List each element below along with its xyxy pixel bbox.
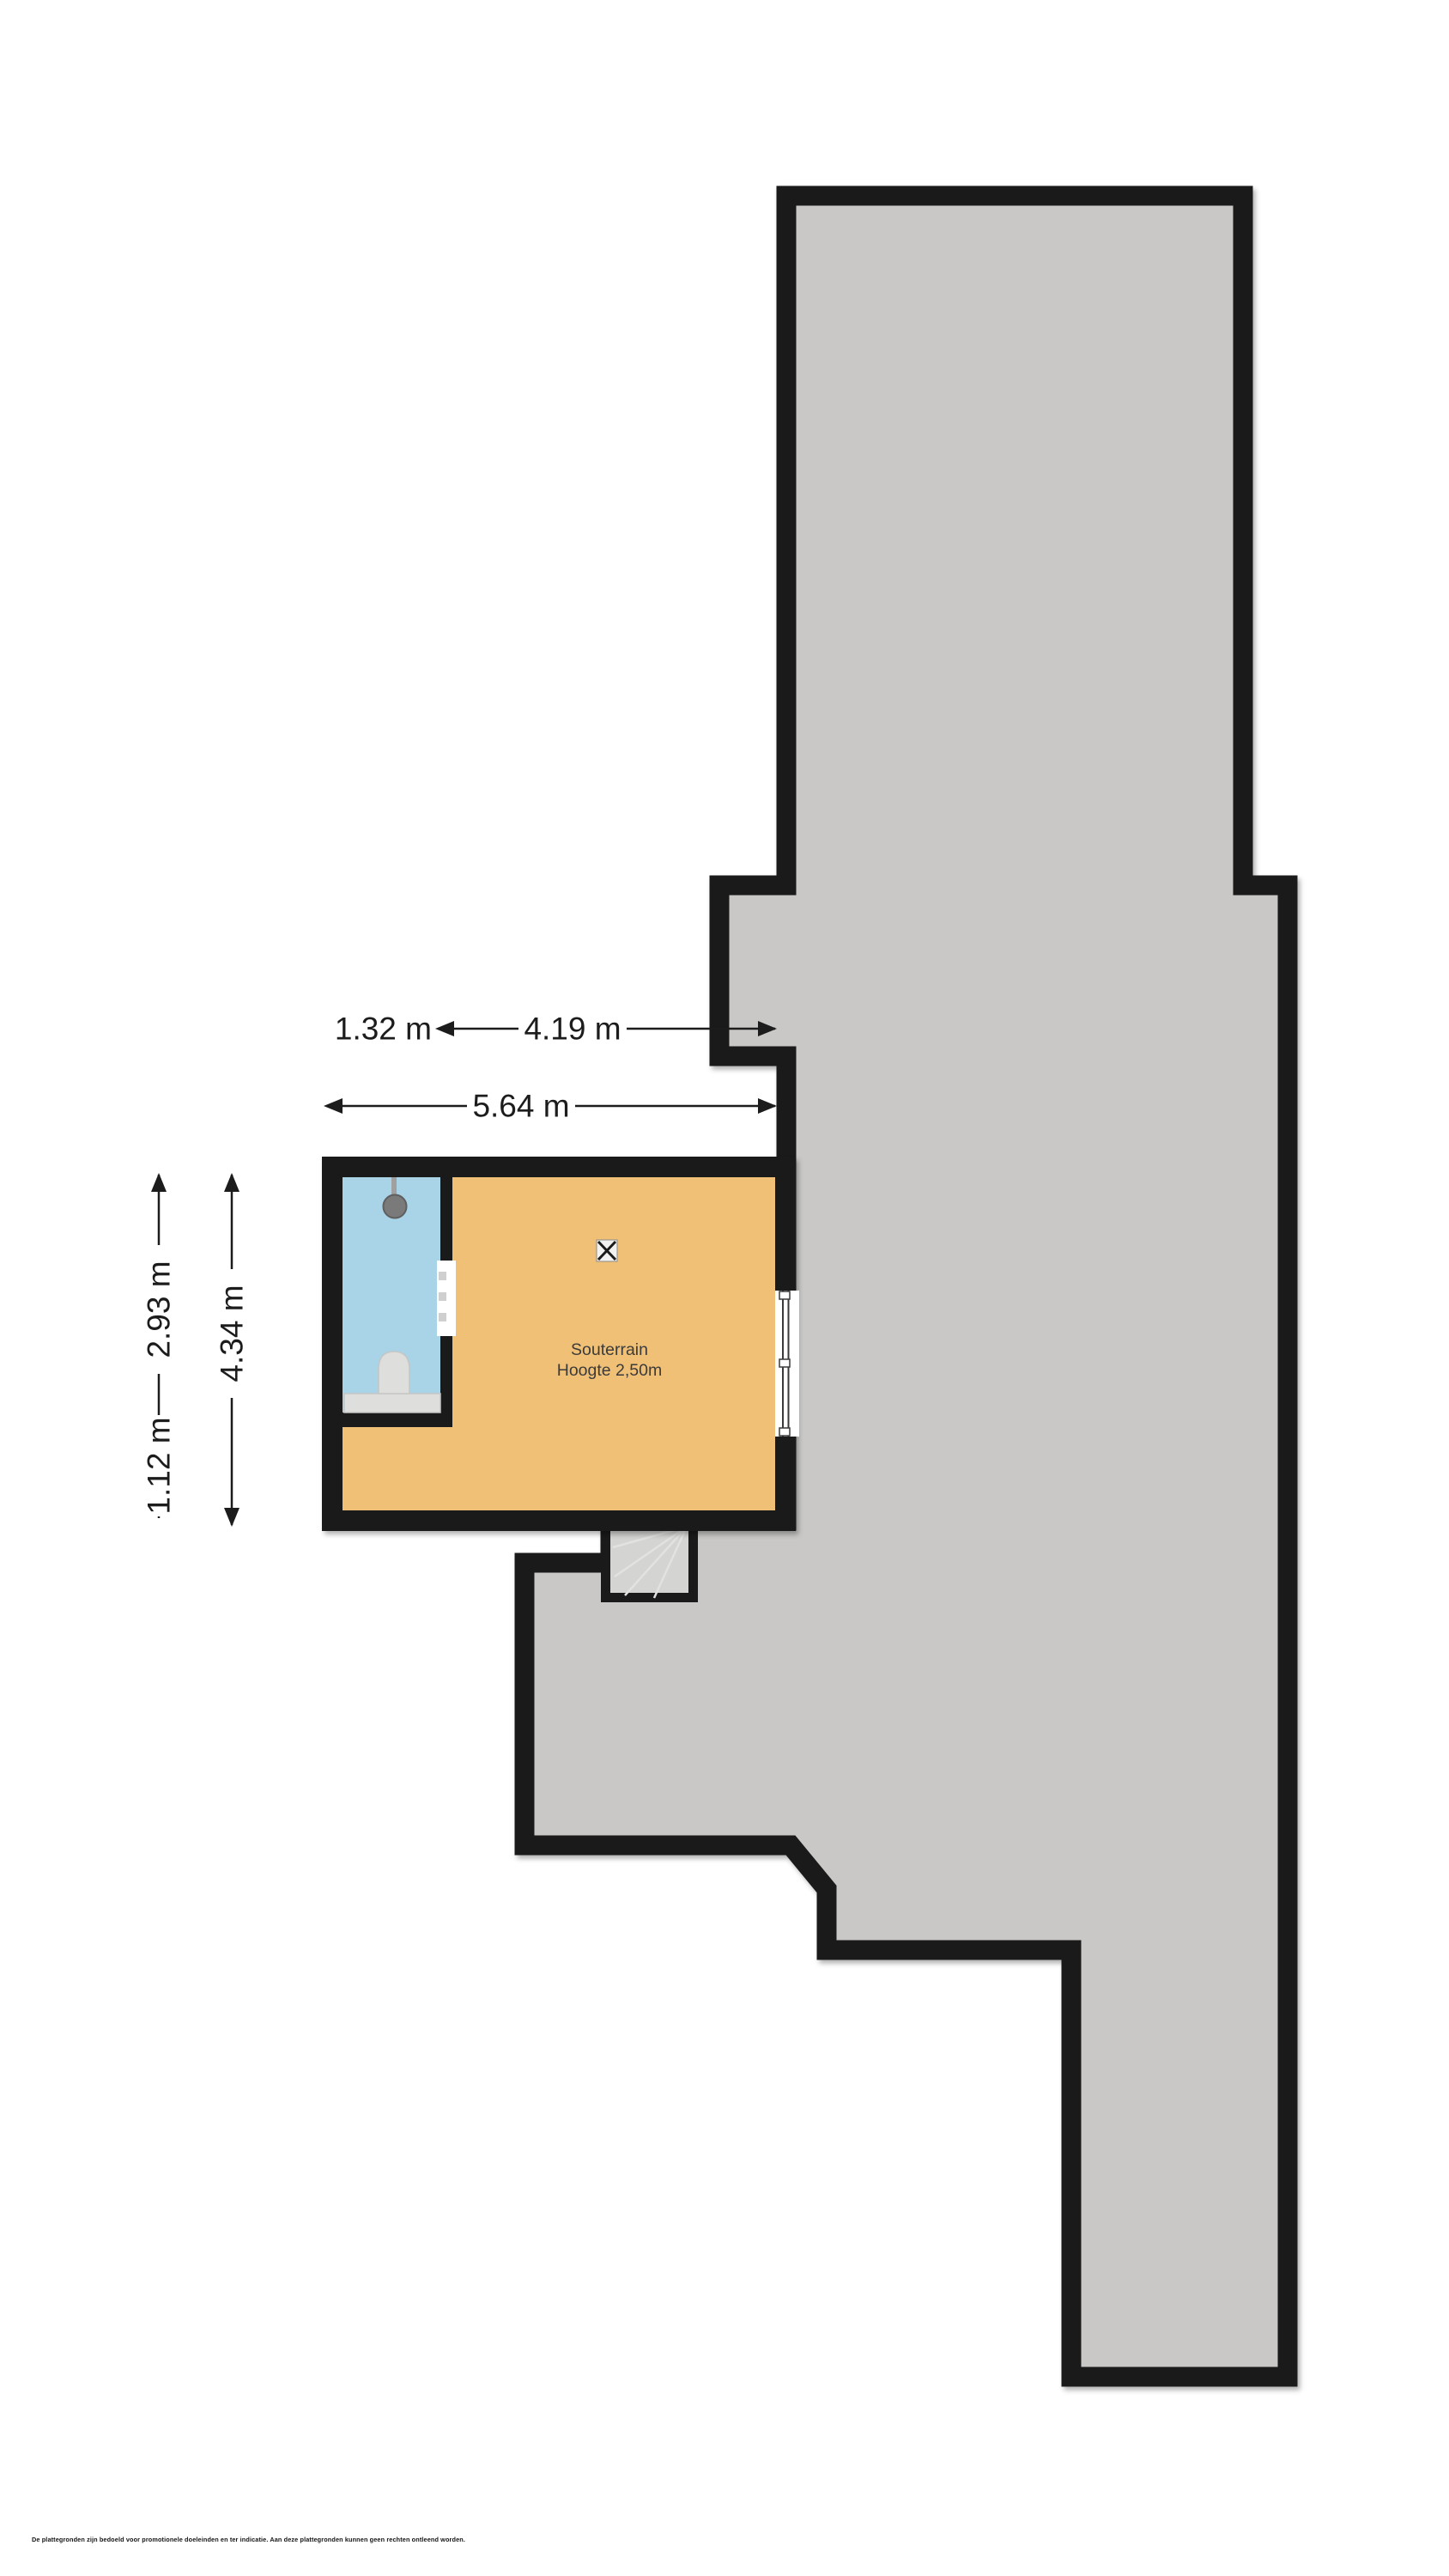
bathroom	[343, 1177, 456, 1427]
dimension-total-height: 4.34 m	[213, 1173, 251, 1527]
dimension-left-split: 2.93 m 1.12 m	[140, 1173, 178, 1518]
bathroom-wall-bottom	[343, 1413, 452, 1427]
window-tick-icon	[779, 1291, 790, 1299]
disclaimer-text: De plattegronden zijn bedoeld voor promo…	[32, 2536, 465, 2543]
room-name: Souterrain	[571, 1340, 648, 1359]
floorplan-canvas: 1.32 m 4.19 m 5.64 m 2.93 m 1.12 m 4.34 …	[0, 0, 1449, 2576]
door-dash-icon	[439, 1313, 446, 1321]
dim-room-width-inner: 4.19 m	[524, 1012, 621, 1047]
dim-total-width: 5.64 m	[472, 1089, 569, 1124]
arrow-up-icon	[224, 1173, 239, 1192]
window-tick-icon	[779, 1359, 790, 1367]
staircase	[606, 1521, 694, 1599]
window-tick-icon	[779, 1428, 790, 1436]
dim-total-height: 4.34 m	[215, 1285, 250, 1382]
arrow-down-icon	[224, 1508, 239, 1527]
dim-below-bathroom-height: 1.12 m	[142, 1417, 177, 1514]
door-dash-icon	[439, 1292, 446, 1301]
arrow-left-icon	[435, 1021, 454, 1036]
room-height-note: Hoogte 2,50m	[557, 1361, 663, 1380]
cross-marker-icon	[597, 1240, 617, 1261]
dimension-total-width: 5.64 m	[324, 1087, 777, 1125]
arrow-up-icon	[151, 1173, 167, 1192]
dim-bathroom-width: 1.32 m	[335, 1012, 432, 1047]
arrow-left-icon	[324, 1098, 343, 1114]
arrow-right-icon	[758, 1098, 777, 1114]
dim-bathroom-height: 2.93 m	[142, 1261, 177, 1358]
window	[775, 1291, 799, 1437]
door-dash-icon	[439, 1272, 446, 1280]
